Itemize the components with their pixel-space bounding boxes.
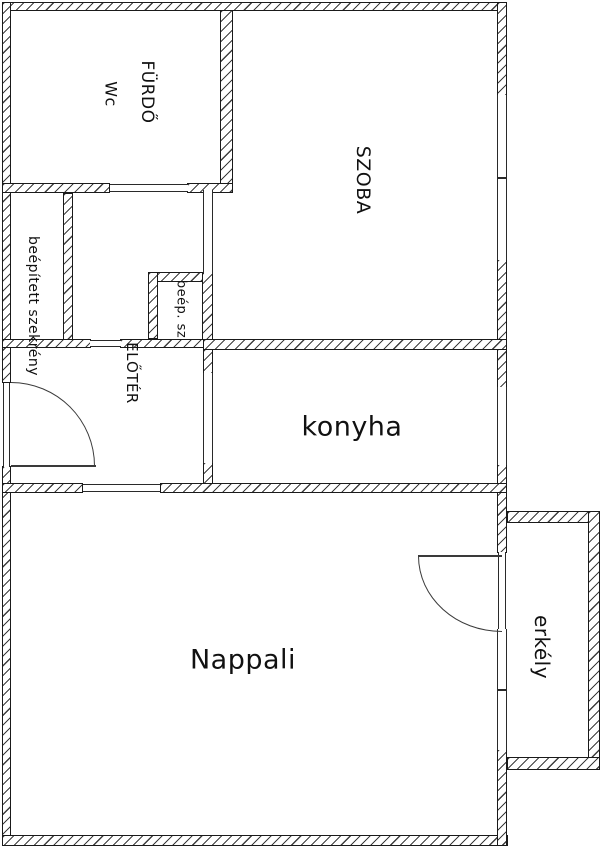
closet-niche-opening [90, 340, 121, 347]
konyha-door-opening [203, 373, 213, 463]
wall-segment [2, 2, 507, 11]
balcony-door-arc [418, 556, 502, 632]
wall-segment [202, 272, 213, 340]
wall-segment [2, 339, 91, 348]
room-label-beepitett: beépített szekrény [25, 236, 41, 376]
wall-segment [148, 272, 158, 339]
wall-segment [497, 259, 507, 388]
wall-segment [497, 464, 507, 553]
room-label-erkely: erkély [530, 615, 554, 679]
entrance-door-arc [11, 382, 95, 466]
wall-segment [507, 757, 600, 770]
balcony-door-leaf [418, 555, 502, 557]
wall-segment [2, 183, 110, 193]
furdo-door-opening [110, 184, 188, 192]
wall-segment [160, 483, 507, 493]
wall-segment [203, 462, 213, 484]
room-label-furdo: FÜRDŐ [137, 60, 157, 123]
eloter-nappali-opening [83, 484, 160, 492]
wall-segment [2, 483, 83, 493]
window-sill-tick [497, 689, 507, 691]
floor-plan: FÜRDŐWcSZOBAbeépített szekrénybeép. szEL… [0, 0, 600, 847]
room-label-eloter: ELŐTÉR [123, 342, 141, 404]
room-label-beep_sz: beép. sz [174, 280, 189, 338]
wall-segment [203, 339, 507, 350]
szoba-door-opening [203, 190, 213, 274]
wall-segment [2, 466, 11, 836]
window-sill-tick [497, 177, 507, 179]
wall-segment [497, 2, 507, 96]
wall-segment [507, 511, 600, 523]
entrance-door-opening [3, 383, 10, 467]
wall-segment [220, 10, 233, 184]
wall-segment [497, 749, 507, 846]
room-label-konyha: konyha [302, 412, 403, 443]
room-label-szoba: SZOBA [352, 146, 374, 215]
room-label-nappali: Nappali [190, 645, 296, 676]
konyha-window [497, 387, 507, 465]
entrance-door-leaf [11, 465, 96, 467]
wall-segment [203, 349, 213, 374]
wall-segment [588, 511, 600, 770]
wall-segment [2, 835, 508, 846]
room-label-wc: Wc [102, 81, 121, 107]
wall-segment [63, 193, 73, 340]
